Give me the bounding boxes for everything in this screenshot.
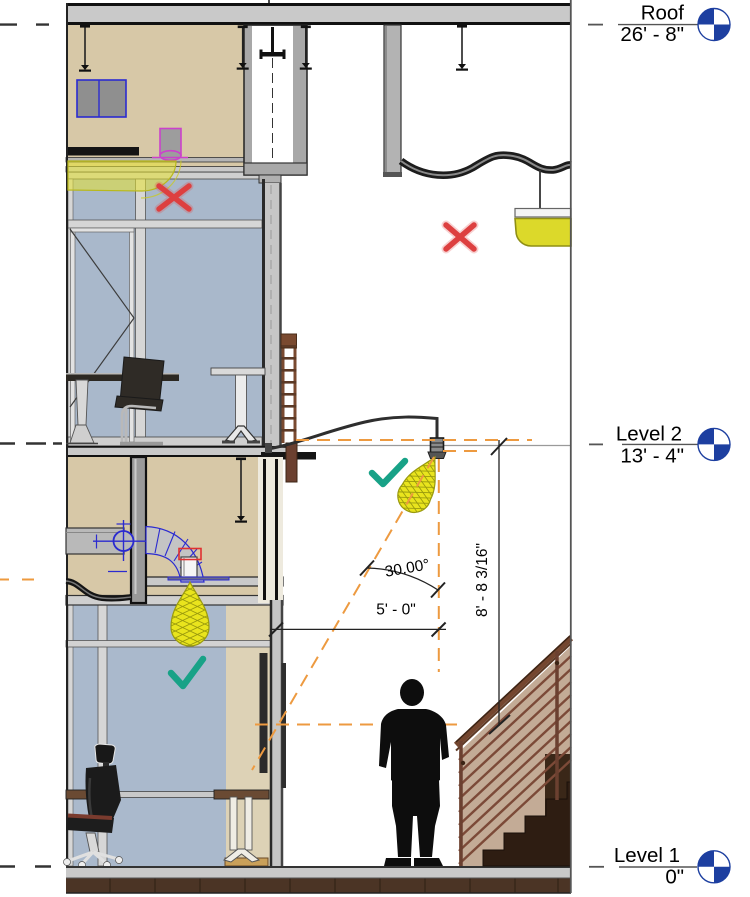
svg-text:26' - 8": 26' - 8" [620, 23, 684, 46]
svg-text:8' - 8 3/16": 8' - 8 3/16" [474, 543, 491, 617]
svg-text:13' - 4": 13' - 4" [620, 445, 684, 468]
svg-text:Level 2: Level 2 [616, 423, 682, 446]
svg-text:5' - 0": 5' - 0" [376, 602, 415, 619]
svg-text:0": 0" [665, 866, 684, 889]
svg-text:Roof: Roof [641, 2, 685, 25]
svg-text:Level 1: Level 1 [614, 844, 680, 867]
